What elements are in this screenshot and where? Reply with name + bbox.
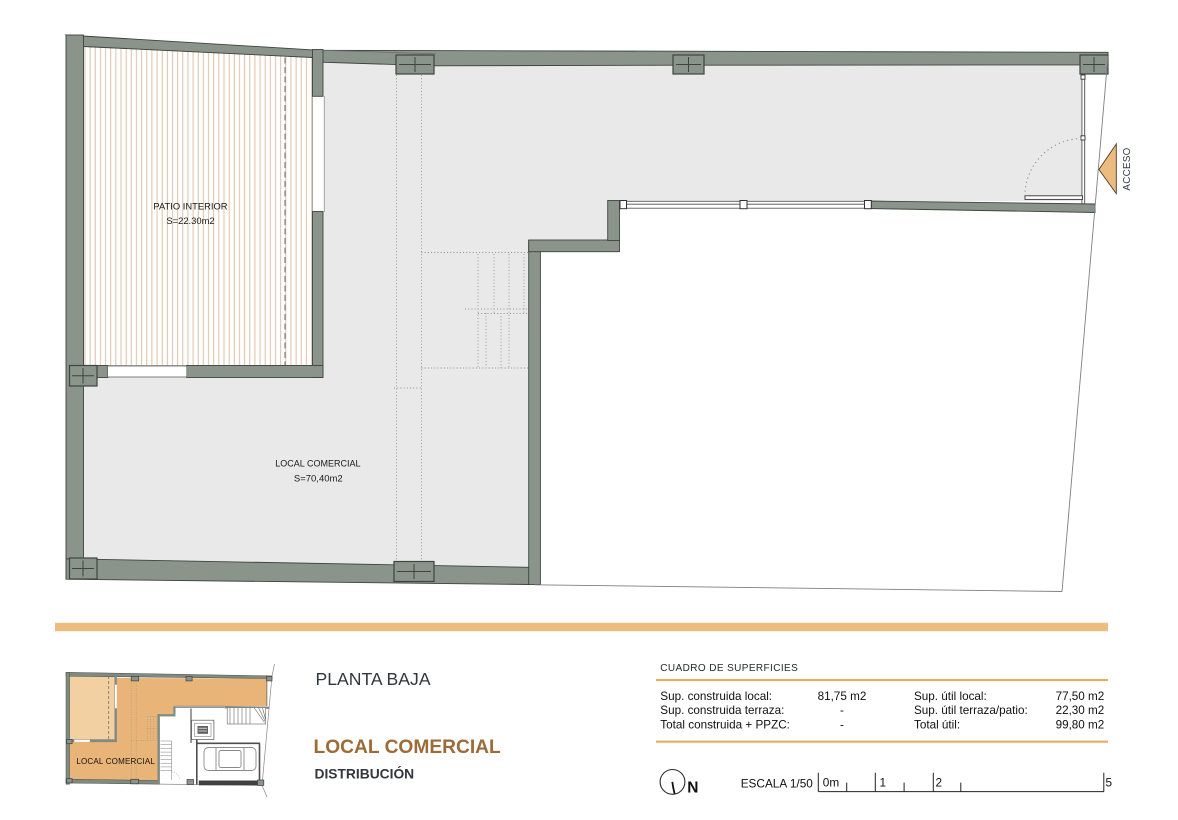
- svg-text:LOCAL COMERCIAL: LOCAL COMERCIAL: [76, 757, 155, 766]
- svg-text:S=70,40m2: S=70,40m2: [294, 474, 343, 485]
- svg-text:Sup. útil terraza/patio:: Sup. útil terraza/patio:: [914, 704, 1028, 717]
- svg-text:LOCAL COMERCIAL: LOCAL COMERCIAL: [275, 459, 360, 469]
- svg-text:LOCAL COMERCIAL: LOCAL COMERCIAL: [314, 737, 502, 758]
- svg-text:2: 2: [936, 776, 943, 790]
- svg-text:N: N: [687, 779, 698, 796]
- svg-text:PLANTA BAJA: PLANTA BAJA: [316, 669, 431, 689]
- svg-text:CUADRO DE SUPERFICIES: CUADRO DE SUPERFICIES: [660, 663, 798, 674]
- svg-text:0m: 0m: [823, 776, 840, 790]
- svg-text:-: -: [840, 704, 844, 717]
- svg-text:Sup. construida local:: Sup. construida local:: [660, 690, 772, 703]
- svg-text:S=22.30m2: S=22.30m2: [166, 215, 214, 226]
- svg-text:77,50 m2: 77,50 m2: [1056, 690, 1105, 703]
- svg-text:ESCALA 1/50: ESCALA 1/50: [741, 776, 814, 790]
- svg-text:Total construida + PPZC:: Total construida + PPZC:: [660, 718, 790, 731]
- svg-text:1: 1: [880, 776, 887, 790]
- svg-text:PATIO INTERIOR: PATIO INTERIOR: [153, 201, 227, 212]
- svg-text:DISTRIBUCIÓN: DISTRIBUCIÓN: [315, 764, 415, 781]
- svg-text:5: 5: [1106, 776, 1113, 790]
- svg-text:ACCESO: ACCESO: [1122, 147, 1133, 190]
- svg-text:Total útil:: Total útil:: [914, 718, 960, 731]
- svg-text:Sup. útil local:: Sup. útil local:: [914, 690, 987, 703]
- svg-text:Sup. construida terraza:: Sup. construida terraza:: [660, 704, 784, 717]
- svg-text:-: -: [840, 718, 844, 731]
- svg-text:81,75 m2: 81,75 m2: [818, 690, 867, 703]
- svg-text:99,80 m2: 99,80 m2: [1056, 718, 1105, 731]
- svg-text:22,30 m2: 22,30 m2: [1056, 704, 1105, 717]
